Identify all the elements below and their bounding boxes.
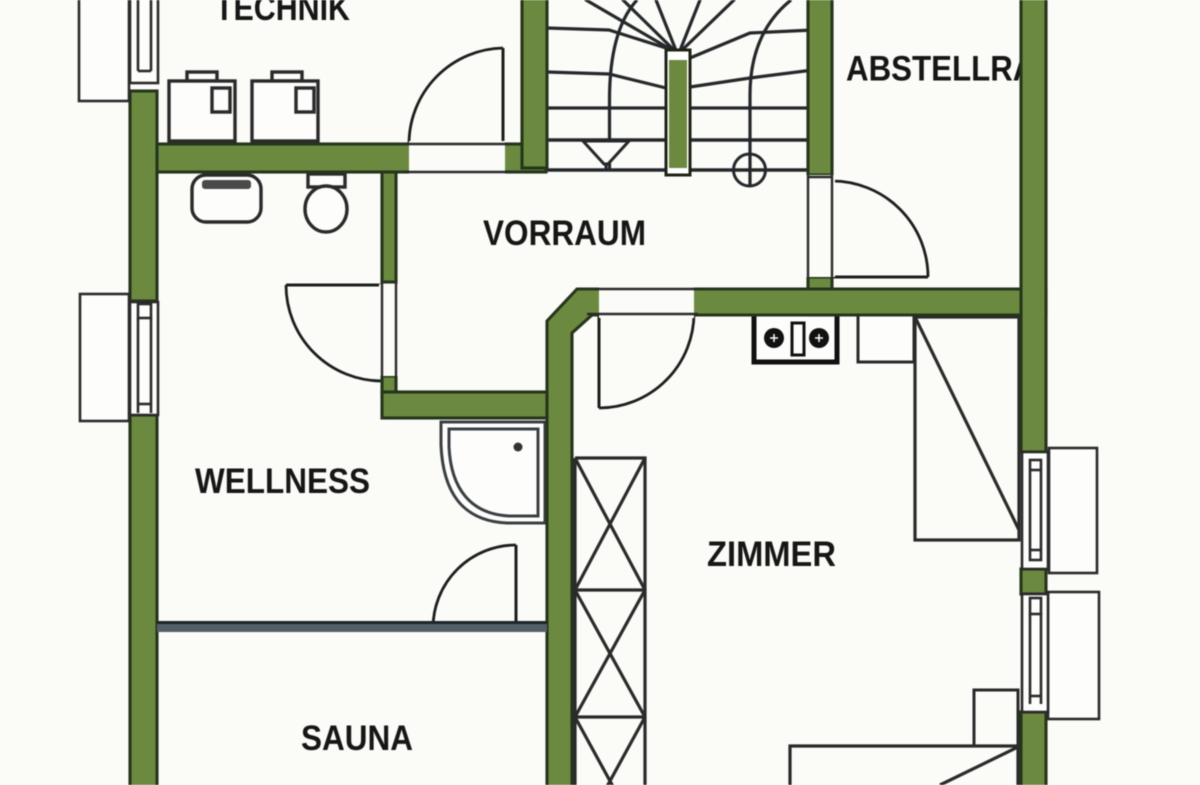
svg-text:TECHNIK: TECHNIK: [215, 0, 350, 28]
svg-text:WELLNESS: WELLNESS: [195, 462, 370, 501]
svg-text:VORRAUM: VORRAUM: [483, 214, 646, 253]
svg-text:SAUNA: SAUNA: [301, 719, 413, 758]
svg-text:ZIMMER: ZIMMER: [707, 535, 836, 574]
